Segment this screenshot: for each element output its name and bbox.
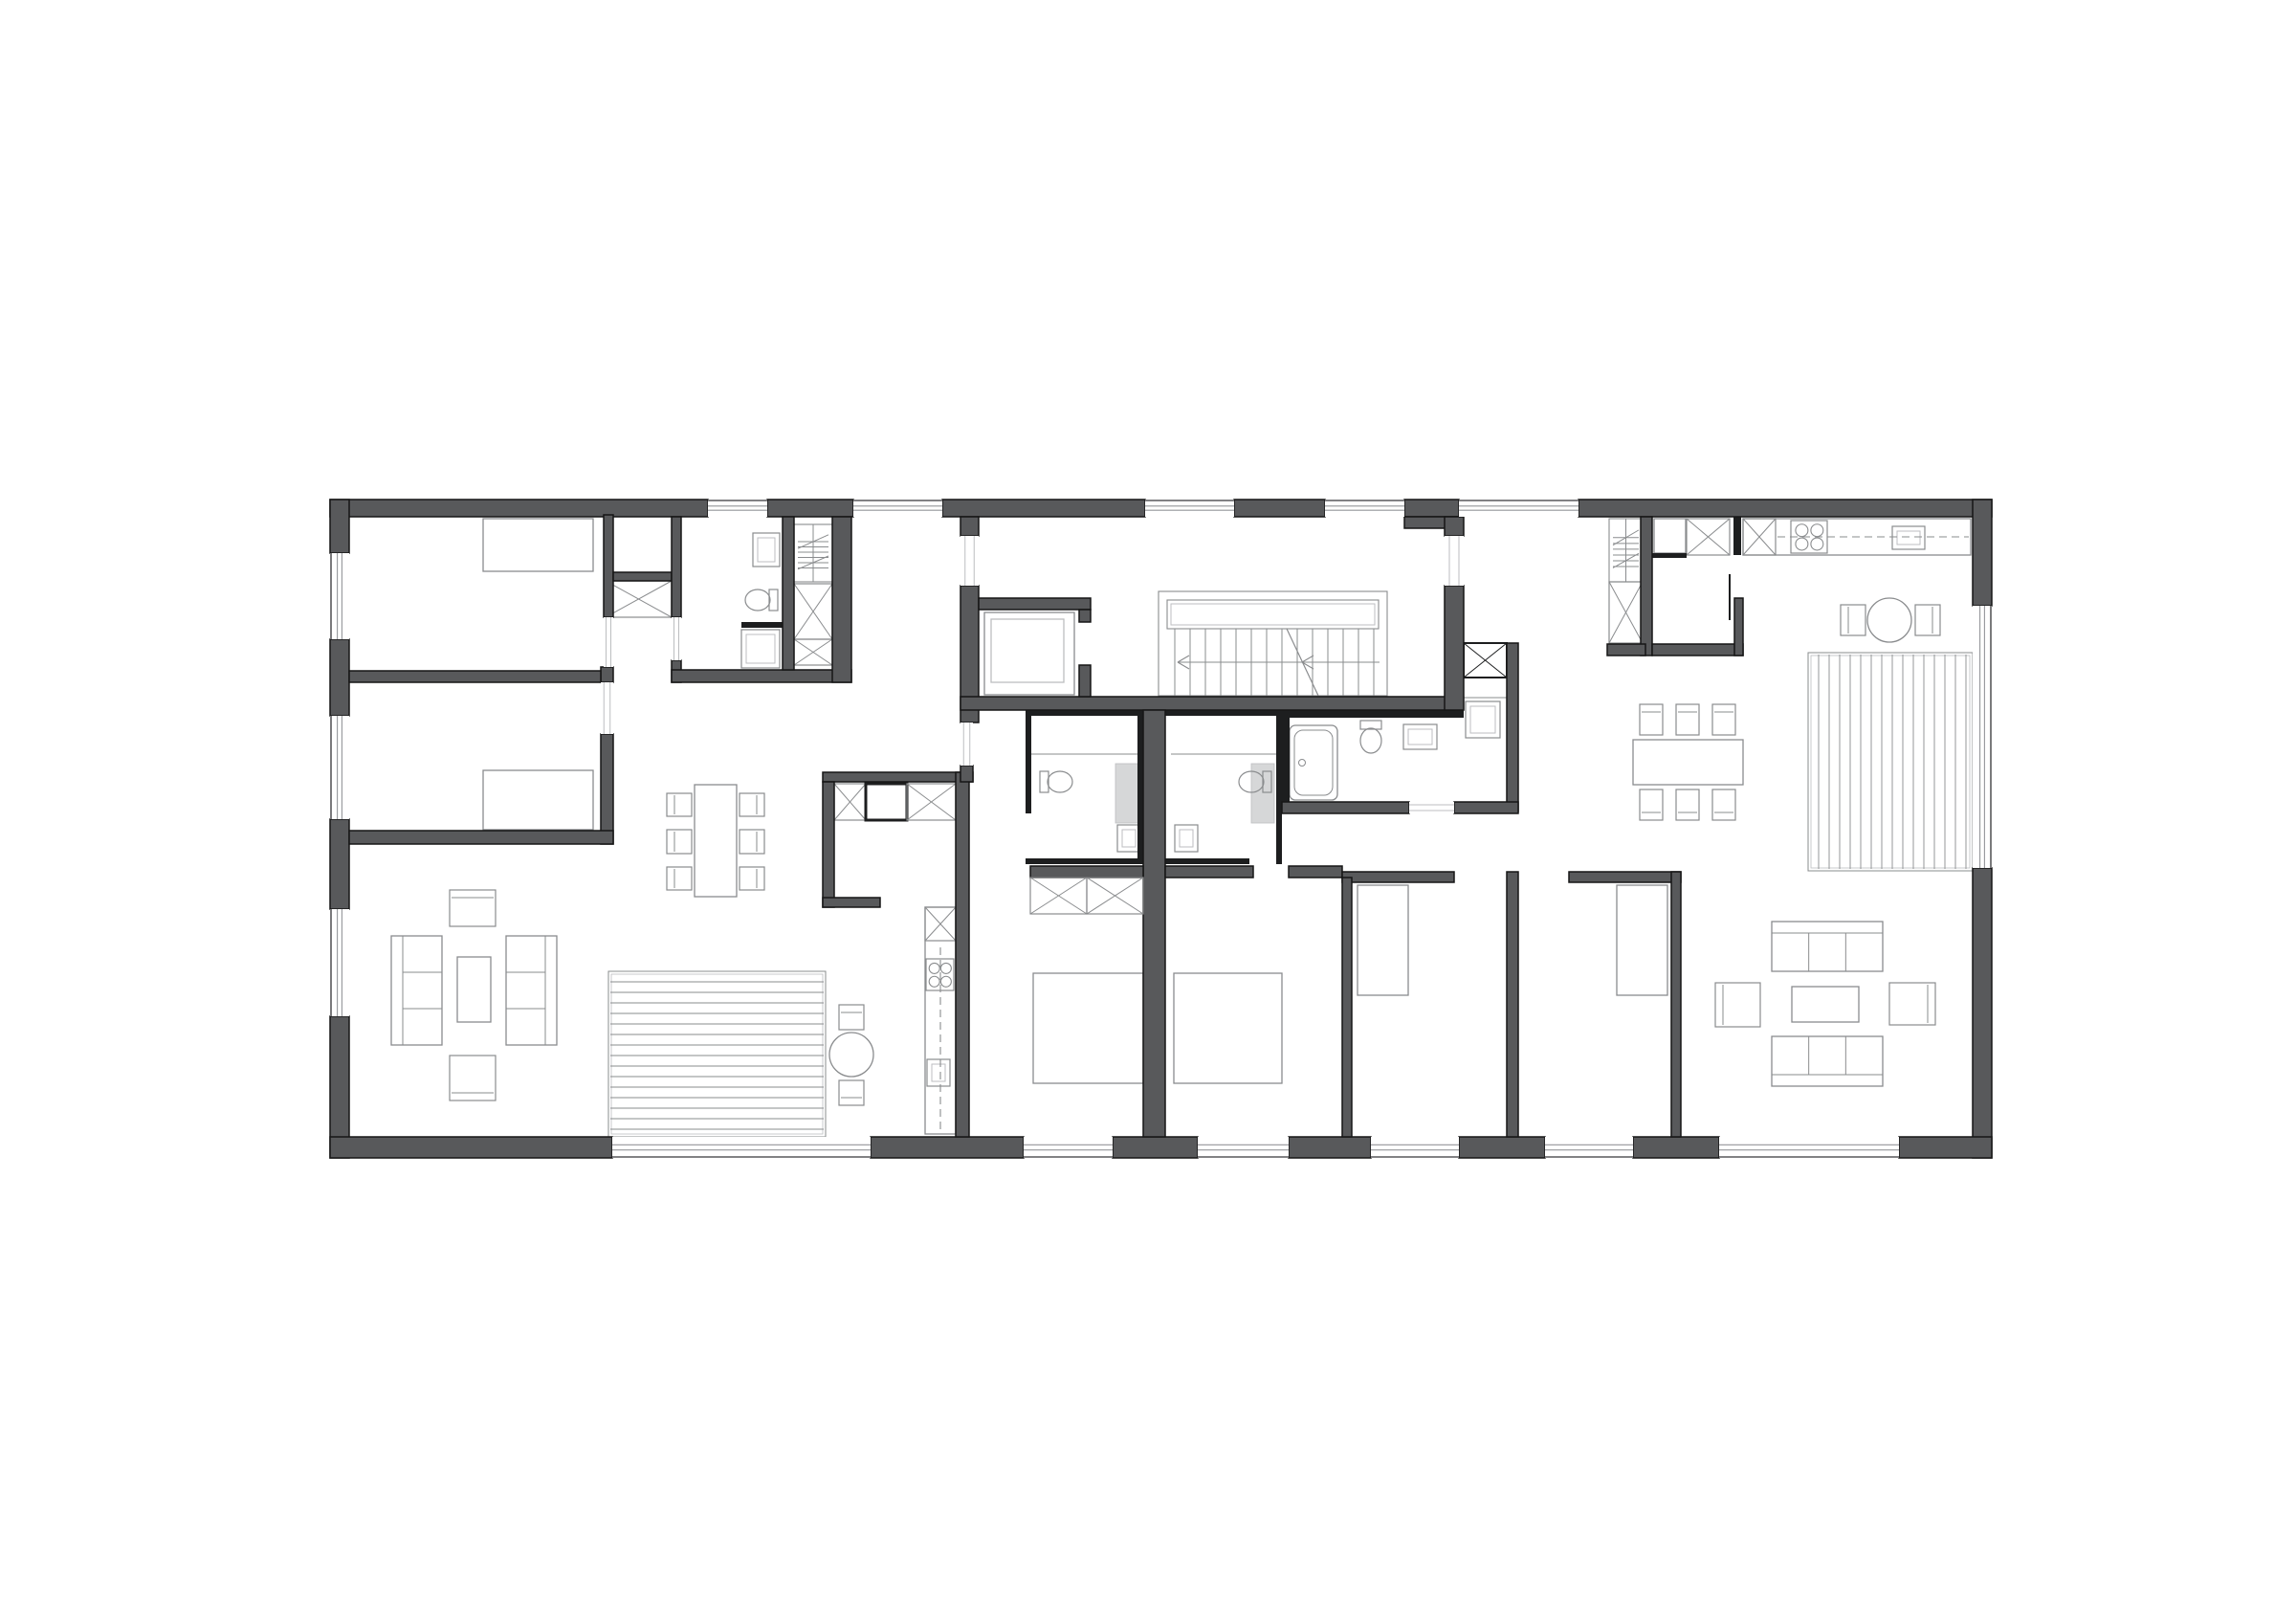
round-table-chair (839, 1080, 864, 1105)
wall-bedroom1-stub (601, 667, 613, 682)
dining-chair (1640, 704, 1663, 735)
wc2-wall-right (1276, 710, 1282, 864)
wall-elevator-top (979, 598, 1091, 610)
storage-right-cabinet (1654, 519, 1686, 553)
wall-ext-left (330, 819, 349, 909)
wall-entry-right (1445, 586, 1464, 710)
wall-corridor (960, 697, 1454, 710)
bed-left-room2 (483, 770, 593, 830)
bed-mid-room2 (1174, 973, 1282, 1083)
wall-bedroom-r2-top (1569, 872, 1681, 882)
wardrobe-x-left-small (794, 639, 832, 665)
duct-shaft-x (1464, 643, 1507, 678)
round-table-right (1867, 598, 1911, 642)
deck-left-stripes (608, 971, 826, 1137)
dining-table-right (1633, 740, 1743, 785)
dining-chair (1712, 704, 1735, 735)
dining-chair (667, 793, 692, 816)
stairs (1159, 591, 1387, 696)
wall-bath-right-bottom (1282, 802, 1409, 813)
storage-locker-x (834, 784, 866, 820)
wall-storage-right-bottom (1652, 644, 1743, 656)
window-left (330, 909, 349, 1016)
wall-ext-top (767, 500, 853, 517)
door-bath-left (672, 617, 681, 660)
round-table-chair (1841, 605, 1865, 635)
wall-shaft-right (1507, 643, 1518, 811)
round-table-chair (839, 1005, 864, 1030)
bed-right-room2 (1617, 885, 1667, 995)
wardrobe-rail-right (1609, 519, 1643, 582)
door-bedroom1 (604, 617, 613, 667)
door-entry-left (960, 536, 979, 586)
window-bottom (1024, 1137, 1113, 1158)
storage-right-edge-wall (1733, 517, 1741, 555)
wall-ext-top (1404, 500, 1459, 517)
wall-ext-bottom (1633, 1137, 1719, 1158)
wc2-wall-bottom (1165, 858, 1249, 864)
wall-storage-right-stub (1734, 598, 1743, 656)
sofa-left (506, 936, 557, 1045)
floor-plan-page: Residential building floor plan — three … (0, 0, 2296, 1623)
window-bottom (1545, 1137, 1633, 1158)
wall-ext-bottom (1899, 1137, 1992, 1158)
window-top (853, 500, 942, 517)
elevator-car-inner (991, 619, 1064, 682)
door-lobby (960, 723, 973, 766)
window-top (708, 500, 767, 517)
wall-ext-top (1234, 500, 1325, 517)
wall-elevator-right-upper (1079, 610, 1091, 622)
bathtub (1290, 725, 1337, 800)
wall-ext-bottom (871, 1137, 1024, 1158)
armchair-left (450, 1056, 496, 1101)
window-right (1973, 606, 1992, 868)
wall-wardrobe-right-foot (1607, 644, 1645, 656)
dining-chair (740, 867, 764, 890)
wc1-sink (1117, 825, 1140, 852)
wardrobe-x-left (794, 584, 832, 639)
wall-bedroom2-bottom (349, 831, 613, 844)
washing-machine (1403, 724, 1437, 749)
wc1-wall-top (1026, 710, 1143, 716)
terrace-right-stripes (1808, 653, 1973, 871)
wc1-door-leaf (1115, 764, 1138, 823)
window-top (1459, 500, 1578, 517)
wall-lobby-left (960, 766, 973, 782)
dining-chair (667, 867, 692, 890)
dining-chair (1676, 704, 1699, 735)
wall-ext-left (330, 639, 349, 716)
bed-mid-room1 (1033, 973, 1143, 1083)
floor-plan-drawing: Residential building floor plan — three … (0, 0, 2296, 1623)
sofa-right (1772, 922, 1883, 971)
wall-wardrobe-right-apt (1641, 517, 1652, 656)
wall-ext-bottom (330, 1137, 612, 1158)
bath-left-sink (753, 533, 780, 567)
wall-kitchen-left (956, 772, 969, 1137)
wall-bath-bottom (672, 670, 851, 682)
wc1-wall-bottom (1026, 858, 1143, 864)
wall-wardrobe-right (832, 517, 851, 682)
wall-living-divider (1671, 872, 1681, 1137)
door-bedroom2 (601, 682, 613, 734)
bed-right-room1 (1358, 885, 1408, 995)
round-table-left (829, 1033, 873, 1077)
wall-bedroom-r1r2-divider (1507, 872, 1518, 1137)
door-entry-right (1445, 536, 1464, 586)
wall-bath-left-upper (672, 517, 681, 617)
storage-right-x (1687, 519, 1730, 555)
coffee-table-left (457, 957, 491, 1022)
wall-ext-top (942, 500, 1145, 517)
wall-bedroom1-right (604, 515, 613, 617)
wall-ext-left (330, 500, 349, 553)
bath-left-toilet (745, 589, 778, 611)
wall-storage-bottom (823, 898, 880, 907)
wall-demising (1143, 710, 1165, 1137)
coffee-table-right (1792, 987, 1859, 1022)
sofa-right (1772, 1036, 1883, 1086)
dining-table-left (695, 785, 737, 897)
wall-storage-left (823, 782, 834, 907)
wall-bedroom-r1-top (1342, 872, 1454, 882)
wall-ext-bottom (1289, 1137, 1371, 1158)
wc1-wall-right (1137, 710, 1143, 864)
wardrobe-x-right (1609, 582, 1643, 643)
storage-locker-x-wide (907, 784, 956, 820)
armchair-right (1715, 983, 1760, 1027)
wc1-toilet (1040, 771, 1072, 792)
wall-bedrooms-divider (349, 671, 601, 682)
bath-left-halfwall (741, 622, 783, 628)
storage-right-cabinet-wall (1652, 553, 1687, 558)
wall-ext-bottom (1459, 1137, 1545, 1158)
kitchen-cabinet-x-right (1743, 519, 1776, 555)
window-top (1325, 500, 1404, 517)
window-bottom (1371, 1137, 1459, 1158)
bath-right-toilet (1360, 721, 1381, 753)
armchair-left (450, 890, 496, 926)
wc2-sink (1175, 825, 1198, 852)
hall-closet-x (606, 581, 672, 617)
window-bottom (1719, 1137, 1899, 1158)
dining-chair (1676, 789, 1699, 820)
window-top (1145, 500, 1234, 517)
kitchen-sink-right (1892, 526, 1925, 549)
dining-chair (1712, 789, 1735, 820)
bath-right-wall-top (1290, 710, 1464, 718)
dining-chair (740, 830, 764, 854)
wardrobe-m1-x (1087, 878, 1143, 914)
bath-nook-basin (1466, 701, 1500, 738)
wall-bedroom-m1-top (1030, 866, 1143, 878)
kitchen-cabinet-x-left (925, 907, 956, 941)
wall-bedroom-r1-left (1342, 878, 1352, 1137)
wall-bedroom2-right (601, 734, 613, 844)
wall-ext-top (330, 500, 708, 517)
sofa-left (391, 936, 442, 1045)
wall-entry-left-stub (960, 517, 979, 536)
kitchen-sink-left (927, 1059, 950, 1086)
window-bottom (1198, 1137, 1289, 1158)
wall-ext-right (1973, 868, 1992, 1158)
bath-right-wall-left (1282, 710, 1290, 811)
round-table-chair (1915, 605, 1940, 635)
wardrobe-m1-x (1030, 878, 1087, 914)
wall-entry-right-stub (1445, 517, 1464, 536)
wall-elevator-right-lower (1079, 665, 1091, 697)
dining-chair (1640, 789, 1663, 820)
window-left (330, 716, 349, 819)
wall-storage-top (823, 772, 973, 782)
wc1-wall-left (1026, 710, 1031, 813)
wc2-wall-top (1165, 710, 1282, 716)
wall-ext-top (1578, 500, 1992, 517)
dining-chair (667, 830, 692, 854)
wall-bath-right-bottom (1454, 802, 1518, 813)
wall-ext-bottom (1113, 1137, 1198, 1158)
wall-ext-right (1973, 500, 1992, 606)
wall-bath-wardrobe-divider (783, 517, 794, 670)
window-left (330, 553, 349, 639)
wall-bedroom-m2-top (1165, 866, 1253, 878)
wardrobe-rail-left (794, 524, 832, 582)
storage-locker-box (866, 784, 907, 820)
bath-left-shower (741, 630, 780, 668)
wall-bedroom-m2-top (1289, 866, 1342, 878)
armchair-right (1889, 983, 1935, 1025)
door-bath-right (1409, 802, 1454, 813)
window-bottom (612, 1137, 871, 1158)
wall-closet-top (613, 572, 672, 581)
bed-left-room1 (483, 519, 593, 571)
dining-chair (740, 793, 764, 816)
